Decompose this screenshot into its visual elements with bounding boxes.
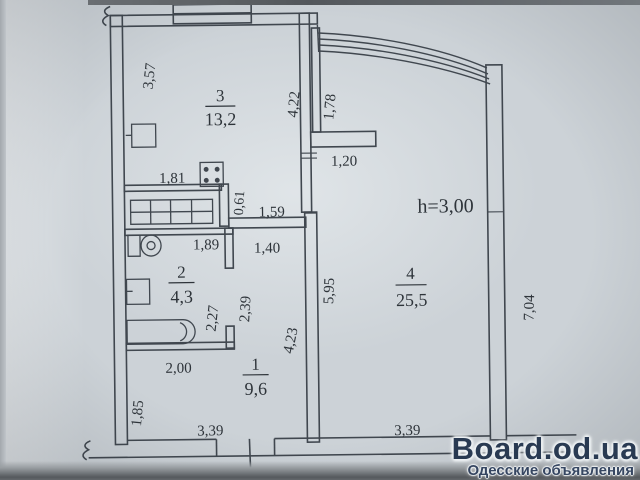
sink-icon [126,279,149,304]
svg-text:9,6: 9,6 [244,379,267,399]
wall-bathroom-right-lower [226,326,234,348]
dim-room3-right: 4,22 [285,91,303,119]
svg-text:4,3: 4,3 [170,287,193,307]
wall-box-icon [126,124,156,147]
dim-hall-bottom: 3,39 [197,423,223,439]
stove-icon [200,162,223,186]
floor-plan-photo: 1 9,6 2 4,3 3 13,2 4 25,5 [0,0,640,480]
dim-room4-right: 7,04 [522,294,539,321]
dim-hall-left: 1,85 [129,400,147,428]
room4-label: 4 25,5 [395,264,427,310]
dim-room4-bottom: 3,39 [394,423,420,439]
watermark-site: Board.od.ua [452,433,638,465]
svg-text:3: 3 [216,86,225,105]
svg-text:2: 2 [177,263,186,282]
svg-text:4: 4 [406,264,415,283]
floor-plan-drawing: 1 9,6 2 4,3 3 13,2 4 25,5 [0,0,640,480]
dim-niche-width: 1,59 [258,204,284,220]
bathtub-icon [127,320,195,345]
toilet-icon [128,235,161,256]
dim-kitchen-wall: 1,81 [159,171,185,187]
dim-room3-left: 3,57 [141,62,160,90]
dim-corridor-depth: 2,39 [237,295,254,322]
wall-right-outer [486,65,507,440]
svg-text:1: 1 [251,355,260,374]
ceiling-height-label: h=3,00 [417,195,474,218]
dim-balcony-wall: 1,78 [321,93,339,121]
dim-hall-right-wall: 4,23 [281,326,302,355]
dim-niche-depth: 0,61 [232,190,248,215]
svg-text:13,2: 13,2 [205,109,237,129]
dim-corridor-width: 1,40 [254,240,280,256]
wall-balcony-pier [311,28,320,132]
wall-top-outer [110,13,317,27]
wall-bathroom-top [125,228,233,235]
watermark: Board.od.ua Одесские объявления [452,433,638,478]
room1-label: 1 9,6 [242,355,269,399]
room3-label: 3 13,2 [204,86,236,129]
wall-room4-left [305,212,320,442]
svg-text:25,5: 25,5 [396,290,428,310]
photo-edge-left [0,0,6,480]
dim-bathroom-depth: 2,27 [204,304,223,332]
dim-room4-inner-left: 5,95 [321,278,338,305]
dim-bathroom-width: 1,89 [193,237,219,253]
photo-edge-top [88,0,640,5]
room2-label: 2 4,3 [168,263,195,307]
wall-stub [311,131,376,147]
cabinet-row-icon [131,199,213,224]
balcony-curve [317,23,490,86]
dim-hall-top: 2,00 [165,361,191,377]
dim-stub-wall: 1,20 [331,154,357,170]
watermark-tagline: Одесские объявления [452,463,638,478]
break-mark-top [103,7,111,26]
